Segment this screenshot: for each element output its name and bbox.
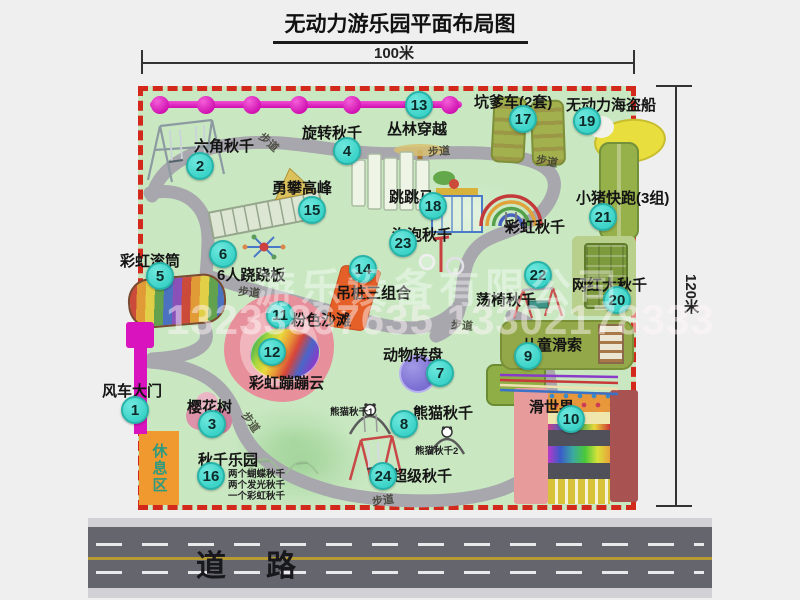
marker-8: 8 bbox=[390, 410, 418, 438]
label-panda-swing-1: 熊猫秋千1 bbox=[330, 404, 373, 418]
dimension-width-tick-left bbox=[141, 50, 143, 74]
slide-band-dark-1 bbox=[548, 430, 610, 446]
label-rainbow-cloud: 彩虹蹦蹦云 bbox=[249, 372, 324, 393]
walkway-label: 步道 bbox=[427, 142, 450, 160]
walkway-label: 步道 bbox=[450, 316, 473, 334]
marker-18: 18 bbox=[419, 192, 447, 220]
label-hanging-pile: 吊桩三组合 bbox=[336, 282, 411, 303]
marker-10: 10 bbox=[557, 405, 585, 433]
label-rainbow-swing: 彩虹秋千 bbox=[505, 216, 565, 237]
page-title-wrap: 无动力游乐园平面布局图 bbox=[0, 8, 800, 44]
marker-5: 5 bbox=[146, 262, 174, 290]
marker-4: 4 bbox=[333, 137, 361, 165]
label-super-swing: 超级秋千 bbox=[392, 465, 452, 486]
dimension-height-tick-top bbox=[656, 85, 692, 87]
walkway-label: 步道 bbox=[237, 283, 261, 301]
dimension-width-tick-right bbox=[633, 50, 635, 74]
marker-6: 6 bbox=[209, 240, 237, 268]
marker-22: 22 bbox=[524, 261, 552, 289]
slide-world-dark-column bbox=[610, 390, 638, 502]
jungle-crossing-dot bbox=[243, 96, 261, 114]
slide-band-dark-2 bbox=[548, 463, 610, 479]
windmill-gate-icon bbox=[126, 322, 154, 348]
label-climbing-peak: 勇攀高峰 bbox=[272, 177, 332, 198]
marker-7: 7 bbox=[426, 359, 454, 387]
road-label: 道路 bbox=[196, 541, 336, 585]
marker-9: 9 bbox=[514, 342, 542, 370]
label-panda-swing: 熊猫秋千 bbox=[413, 402, 473, 423]
park-layout-map: 无动力游乐园平面布局图 100米 120米 bbox=[0, 0, 800, 600]
marker-14: 14 bbox=[349, 255, 377, 283]
marker-21: 21 bbox=[589, 203, 617, 231]
slide-band-yellow bbox=[548, 479, 610, 504]
label-pig-run: 小猪快跑(3组) bbox=[576, 187, 669, 208]
marker-3: 3 bbox=[198, 410, 226, 438]
dimension-height-line bbox=[675, 86, 677, 507]
page-title: 无动力游乐园平面布局图 bbox=[273, 8, 528, 44]
road-lane-line-top bbox=[96, 543, 704, 546]
rest-area-label: 休息区 bbox=[149, 443, 170, 494]
ladder-icon bbox=[598, 324, 624, 364]
rest-area: 休息区 bbox=[139, 431, 179, 505]
marker-23: 23 bbox=[389, 229, 417, 257]
dimension-height-label: 120米 bbox=[680, 274, 701, 314]
marker-20: 20 bbox=[603, 286, 631, 314]
label-jungle-crossing: 丛林穿越 bbox=[387, 118, 447, 139]
marker-19: 19 bbox=[573, 107, 601, 135]
dimension-height-tick-bottom bbox=[656, 505, 692, 507]
marker-15: 15 bbox=[298, 196, 326, 224]
jungle-crossing-dot bbox=[151, 96, 169, 114]
marker-11: 11 bbox=[266, 301, 294, 329]
dimension-width-label: 100米 bbox=[374, 42, 414, 63]
marker-17: 17 bbox=[509, 105, 537, 133]
jungle-crossing-dot bbox=[290, 96, 308, 114]
slide-band-rainbow bbox=[548, 446, 610, 463]
dimension-width-line bbox=[142, 62, 634, 64]
road-lane-line-bottom bbox=[96, 571, 704, 574]
marker-13: 13 bbox=[405, 91, 433, 119]
marker-24: 24 bbox=[369, 462, 397, 490]
label-chair-swing: 荡椅秋千 bbox=[476, 289, 536, 310]
jungle-crossing-dot bbox=[343, 96, 361, 114]
marker-2: 2 bbox=[186, 152, 214, 180]
label-pink-beach: 粉色沙滩 bbox=[291, 309, 351, 330]
marker-12: 12 bbox=[258, 338, 286, 366]
jungle-crossing-dot bbox=[441, 96, 459, 114]
marker-1: 1 bbox=[121, 396, 149, 424]
jungle-crossing-dot bbox=[197, 96, 215, 114]
walkway-label: 步道 bbox=[371, 491, 395, 510]
label-panda-swing-2: 熊猫秋千2 bbox=[415, 443, 458, 457]
road-center-line bbox=[88, 557, 712, 560]
marker-16: 16 bbox=[197, 462, 225, 490]
swing-park-note-3: 一个彩虹秋千 bbox=[228, 488, 285, 502]
